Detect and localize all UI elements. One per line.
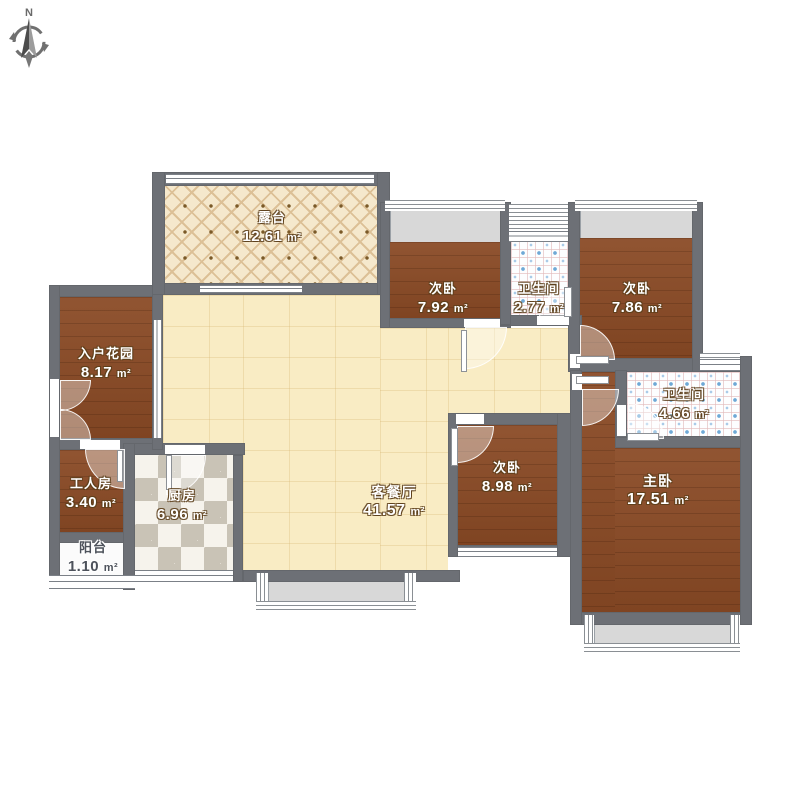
wall <box>49 285 163 297</box>
bathroom-top-niche-frame <box>509 204 568 231</box>
room-kitchen-label: 厨房 6.96 m² <box>157 488 207 524</box>
room-balcony-label: 阳台 1.10 m² <box>68 540 118 576</box>
garden-living-sliding-door <box>153 320 162 438</box>
room-master-bedroom-label: 主卧 17.51 m² <box>627 472 689 511</box>
room-entry-garden-label: 入户花园 8.17 m² <box>78 346 134 382</box>
bathroom-top-window <box>509 231 568 242</box>
room-bedroom-mid-label: 次卧 8.98 m² <box>482 460 532 496</box>
wall <box>233 455 243 582</box>
bedroom-mid-window <box>458 547 557 557</box>
room-bathroom-master-label: 卫生间 4.66 m² <box>659 387 709 423</box>
worker-door-leaf <box>117 450 123 482</box>
wall <box>570 370 582 625</box>
bathroom-master-door-opening <box>617 405 626 436</box>
room-living-dining-floor <box>243 295 380 572</box>
master-door-leaf <box>576 376 609 384</box>
wall <box>570 612 752 625</box>
wall <box>152 172 165 295</box>
wall <box>692 202 703 372</box>
terrace-living-opening <box>200 285 302 293</box>
room-bedroom-top-left-label: 次卧 7.92 m² <box>418 281 468 317</box>
bathroom-master-door-leaf <box>627 433 659 441</box>
worker-door-opening <box>80 440 120 449</box>
kitchen-window <box>135 570 233 582</box>
bathroom-master-window <box>700 359 740 371</box>
kitchen-door-opening <box>165 445 205 454</box>
entry-door-opening <box>50 379 59 437</box>
terrace-top-window <box>166 174 374 184</box>
bedroom-top-left-door-opening <box>464 319 500 327</box>
wall <box>740 356 752 625</box>
master-bay-frame <box>584 643 740 655</box>
compass-north-label: N <box>25 7 33 19</box>
bedroom-top-right-bay-window <box>580 210 694 240</box>
bedroom-top-right-bay-frame <box>575 200 697 211</box>
bedroom-mid-door-leaf <box>451 428 458 466</box>
kitchen-door-leaf <box>166 455 172 490</box>
bedroom-mid-door-opening <box>456 414 484 424</box>
room-living-dining-floor <box>380 328 448 572</box>
floor-plan: N <box>0 0 800 800</box>
bedroom-top-left-bay-frame <box>385 200 505 211</box>
bathroom-top-door-leaf <box>564 287 572 317</box>
wall <box>380 202 390 328</box>
room-bathroom-top-label: 卫生间 2.77 m² <box>514 281 564 317</box>
living-bay-frame <box>256 601 416 612</box>
bedroom-top-right-door-leaf <box>576 356 609 364</box>
balcony-window <box>49 575 135 589</box>
room-bedroom-top-right-label: 次卧 7.86 m² <box>612 281 662 317</box>
wall <box>243 570 460 582</box>
room-living-dining-label: 客餐厅 41.57 m² <box>363 483 425 522</box>
room-worker-room-label: 工人房 3.40 m² <box>66 476 116 512</box>
bedroom-top-left-bay-window <box>390 210 502 244</box>
room-living-dining-floor <box>163 295 243 445</box>
bedroom-top-left-door-leaf <box>461 330 467 372</box>
room-terrace-label: 露台 12.61 m² <box>242 210 301 246</box>
compass-icon: N <box>6 4 52 70</box>
